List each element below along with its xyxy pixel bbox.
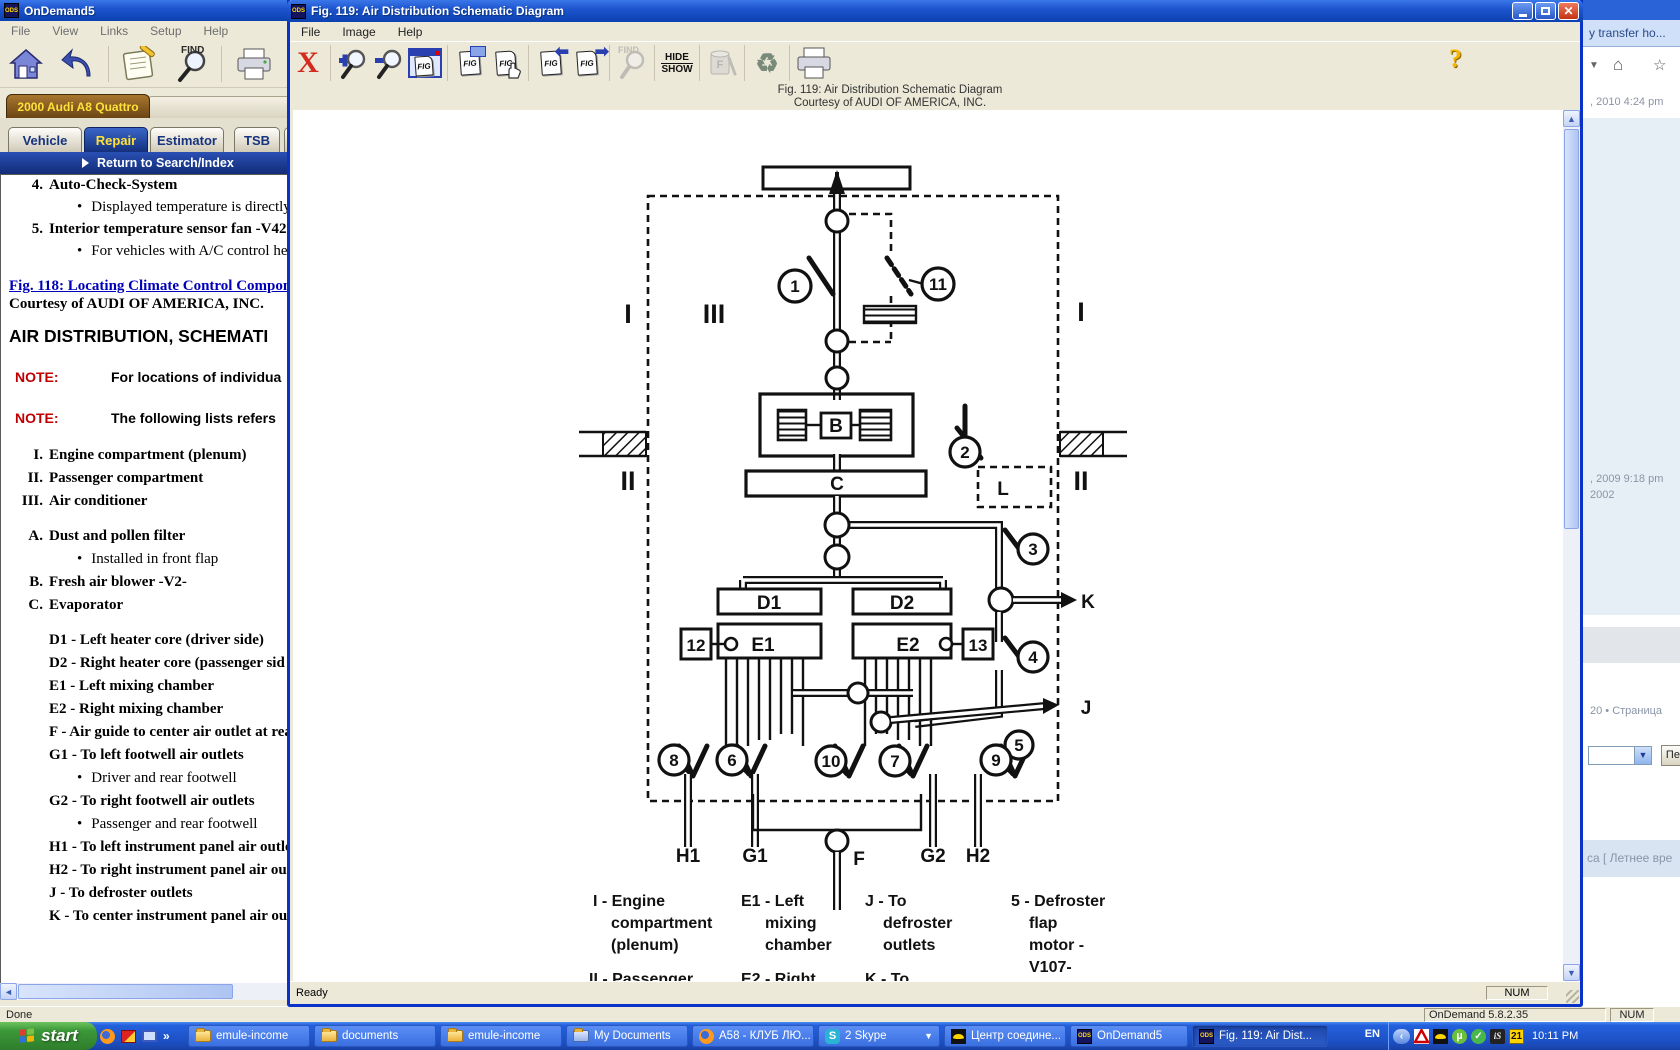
browser-header-text: y transfer ho... [1589,26,1666,40]
folder-icon [195,1030,211,1042]
fig-titlebar[interactable]: ODS Fig. 119: Air Distribution Schematic… [287,0,1583,22]
pager-text: 20 • Страница [1590,705,1662,717]
diagram-number-2: 2 [960,443,969,462]
doc-horizontal-scrollbar[interactable]: ◄ [0,983,287,1000]
diagram-label-air-conditioner: III [703,299,726,329]
list-number: 4. [7,177,43,194]
arrow-right-icon [82,158,89,168]
roman-item: Passenger compartment [49,470,203,487]
taskbar-button-ondemand5[interactable]: ODS OnDemand5 [1070,1025,1188,1047]
diagram-number-1: 1 [790,277,799,296]
toolbar-separator [699,45,700,81]
note-text: For locations of individua [111,369,281,385]
code-item: J - To defroster outlets [49,885,193,902]
status-done: Done [6,1009,32,1021]
taskbar-button-my-documents[interactable]: My Documents [566,1025,688,1047]
toolbar-separator [528,45,529,81]
menu-file[interactable]: File [0,24,41,38]
repair-document-panel: 4. Auto-Check-System Displayed temperatu… [0,174,287,983]
quick-launch-bar: » [100,1024,170,1048]
diagram-number-5: 5 [1014,736,1023,755]
legend-line: flap [1029,915,1058,932]
minimize-button[interactable] [1512,2,1533,20]
menu-setup[interactable]: Setup [139,24,192,38]
toolbar-separator [447,45,448,81]
status-num: NUM [1486,986,1548,1000]
code-item: E1 - Left mixing chamber [49,678,214,695]
letter-item: Evaporator [49,597,123,614]
taskbar-button-documents[interactable]: documents [314,1025,436,1047]
diagram-number-13: 13 [969,636,988,655]
footer-text: са [ Летнее вре [1587,851,1672,865]
toolbar-separator [609,45,610,81]
diagram-label-engine-compartment-left: I [624,299,632,329]
list-bullet: For vehicles with A/C control head [77,243,287,260]
footer-bar-fragment: са [ Летнее вре [1583,840,1680,877]
taskbar-button-label: My Documents [594,1030,671,1042]
fig-window-title: Fig. 119: Air Distribution Schematic Dia… [311,4,564,18]
back-button[interactable] [52,43,104,85]
arrow-left-icon: ⬅ [555,42,569,62]
legend-line: E2 - Right [741,971,816,981]
diagram-number-9: 9 [991,751,1000,770]
scroll-down-icon[interactable]: ▼ [1563,964,1580,981]
list-bullet: Installed in front flap [77,551,218,568]
app-icon: ODS [4,3,19,18]
browser-header-bar: y transfer ho... [1583,20,1680,47]
vehicle-tab[interactable]: 2000 Audi A8 Quattro [6,94,150,118]
tray-badge-21[interactable]: 21 [1509,1029,1524,1044]
language-indicator[interactable]: EN [1365,1028,1380,1040]
status-ready: Ready [296,987,328,999]
back-arrow-icon [60,48,96,80]
tab-repair[interactable]: Repair [84,127,148,152]
maximize-icon [1541,7,1550,15]
tray-red-icon[interactable] [1414,1029,1429,1044]
code-item: F - Air guide to center air outlet at re… [49,724,287,741]
list-bullet: Displayed temperature is directly ca [77,199,287,216]
main-window-title: OnDemand5 [24,4,95,18]
post-timestamp: , 2009 9:18 pm [1590,473,1663,485]
close-figure-button[interactable]: X [290,44,326,82]
media-player-icon[interactable] [121,1030,136,1043]
hide-show-button[interactable]: HIDE SHOW [659,44,695,82]
list-bullet: Passenger and rear footwell [77,816,257,833]
flap-L-box [978,467,1051,507]
home-icon [8,47,44,81]
my-documents-icon [573,1030,589,1042]
roman-item: Engine compartment (plenum) [49,447,247,464]
tab-estimator[interactable]: Estimator [150,127,224,152]
fig-119-window: ODS Fig. 119: Air Distribution Schematic… [287,0,1583,1007]
taskbar-button-label: Fig. 119: Air Dist... [1219,1030,1312,1042]
skype-icon: S [825,1029,840,1044]
diagram-number-3: 3 [1028,540,1037,559]
close-icon: ✕ [1563,4,1573,18]
page-select[interactable]: ▼ [1588,746,1652,765]
windows-flag-icon [19,1028,35,1045]
tray-clock: 10:11 PM [1532,1030,1578,1042]
firefox-icon[interactable] [100,1029,115,1044]
taskbar-button-label: A58 - КЛУБ ЛЮ... [719,1030,811,1042]
list-item: Interior temperature sensor fan -V42- [49,221,287,238]
taskbar-button-label: Центр соедине... [971,1030,1061,1042]
figure-image-area[interactable]: I III I II II B C L [293,110,1563,981]
toolbar-separator [789,45,790,81]
fig-window-view-button[interactable]: FIG [407,44,443,82]
notes-icon [121,46,159,82]
roman-number: I. [7,447,43,464]
ods-icon: ODS [1199,1029,1214,1044]
diagram-number-8: 8 [669,751,678,770]
printer-icon [234,46,274,82]
letter-number: B. [7,574,43,591]
go-button[interactable]: Пер [1661,745,1680,766]
diagram-label-k: K [1081,592,1095,613]
previous-figure-button[interactable]: FIG ⬅ [533,44,569,82]
toolbar-separator [744,45,745,81]
roman-number: II. [7,470,43,487]
tray-utorrent-icon[interactable]: µ [1452,1029,1467,1044]
tab-vehicle[interactable]: Vehicle [8,127,82,152]
find-button-disabled: FIND [614,44,650,82]
main-statusbar: Done OnDemand 5.8.2.35 NUM [0,1006,1680,1022]
figure-vertical-scrollbar[interactable]: ▲ ▼ [1563,110,1580,981]
legend-line: J - To [865,893,907,910]
figure-legend: I - Engine compartment (plenum) II - Pas… [589,893,1105,981]
figure-caption-line1: Fig. 119: Air Distribution Schematic Dia… [290,84,1490,97]
diagram-label-blower: B [829,416,843,437]
fig-toolbar: X FIG FIG [290,41,1580,84]
start-label: start [41,1026,78,1046]
quick-launch-overflow-chevron[interactable]: » [163,1029,170,1043]
letter-item: Fresh air blower -V2- [49,574,187,591]
code-item: H2 - To right instrument panel air outl [49,862,287,879]
taskbar-button-label: OnDemand5 [1097,1030,1162,1042]
diagram-label-d1: D1 [757,593,782,614]
toolbar-separator [108,46,109,82]
browser-titlebar-fragment [1583,0,1680,20]
fig-pan-button[interactable]: FIG [488,44,524,82]
close-x-icon: X [297,46,319,80]
schematic-drawing: I III I II II B C L [293,110,1563,981]
refresh-button[interactable]: ♻ [749,44,785,82]
browser-window-fragment: y transfer ho... ▼ ⌂ ☆ , 2010 4:24 pm , … [1583,0,1680,1008]
diagram-label-engine-compartment-right: I [1077,297,1085,327]
minimize-icon [1519,14,1527,17]
mini-window-icon [470,46,486,57]
legend-line: motor - [1029,937,1084,954]
hide-label: HIDE [661,52,692,64]
return-link-label: Return to Search/Index [97,156,234,170]
printer-icon [794,45,834,81]
zoom-in-button[interactable] [335,44,371,82]
select-arrow-icon[interactable]: ▼ [1634,747,1651,764]
list-item: Auto-Check-System [49,177,177,194]
tray-bat-icon[interactable] [1433,1029,1448,1044]
menu-help[interactable]: Help [387,25,434,39]
diagram-label-e1: E1 [751,635,775,656]
refresh-icon: ♻ [755,48,778,79]
menu-file[interactable]: File [290,25,331,39]
diagram-label-h1: H1 [676,846,701,867]
bulkhead-left [603,432,646,456]
legend-line: II - Passenger [589,971,693,981]
legend-line: (plenum) [611,937,679,954]
chevron-down-icon[interactable]: ▼ [1589,60,1599,71]
mixing-chamber-ducts [726,658,931,746]
fig-118-link[interactable]: Fig. 118: Locating Climate Control Compo… [9,278,287,295]
letter-number: A. [7,528,43,545]
code-item: E2 - Right mixing chamber [49,701,223,718]
code-item: G2 - To right footwell air outlets [49,793,255,810]
status-num: NUM [1610,1008,1654,1022]
tab-tsb[interactable]: TSB [234,127,280,152]
taskbar-button-emule-income-2[interactable]: emule-income [440,1025,562,1047]
fig-window-icon: FIG [408,48,442,78]
arrow-right-icon: ➡ [595,42,609,62]
diagram-label-passenger-compartment-right: II [1073,466,1088,496]
diagram-label-d2: D2 [890,593,914,614]
toolbar-separator [221,46,222,82]
code-item: H1 - To left instrument panel air outle [49,839,287,856]
diagram-label-g1: G1 [742,846,768,867]
print-figure-button[interactable] [794,44,834,82]
menu-image[interactable]: Image [331,25,386,39]
post-year: 2002 [1590,489,1614,501]
zoom-in-icon [337,46,369,80]
taskbar: start » emule-income documents emule-inc… [0,1022,1680,1050]
note-label: NOTE: [15,410,59,426]
diagram-label-e2: E2 [896,635,919,656]
toolbar-separator [330,45,331,81]
fig-menubar: File Image Help [290,22,1580,41]
tray-collapse-chevron[interactable]: ‹ [1393,1029,1410,1044]
ods-icon: ODS [1077,1029,1092,1044]
legend-line: 5 - Defroster [1011,893,1105,910]
maximize-button[interactable] [1535,2,1556,20]
section-heading: AIR DISTRIBUTION, SCHEMATI [9,326,268,347]
home-icon[interactable]: ⌂ [1613,55,1623,75]
diagram-label-l: L [997,479,1009,500]
scroll-thumb[interactable] [1564,129,1579,529]
scroll-left-icon[interactable]: ◄ [0,983,17,1000]
resize-grip[interactable] [1566,990,1579,1003]
recirculation-resistor [864,306,916,323]
taskbar-button-label: 2 Skype [845,1030,887,1042]
roman-number: III. [7,493,43,510]
zoom-out-button[interactable] [371,44,407,82]
taskbar-button-fig-119[interactable]: ODS Fig. 119: Air Dist... [1192,1025,1328,1047]
status-version: OnDemand 5.8.2.35 [1424,1008,1606,1022]
vehicle-tab-background [146,96,306,118]
diagram-label-j: J [1081,698,1092,719]
legend-line: outlets [883,937,936,954]
firefox-icon [699,1029,714,1044]
tray-is-icon[interactable]: iS [1490,1029,1505,1044]
note-text: The following lists refers [111,410,276,426]
letter-number: C. [7,597,43,614]
toolbar-separator [654,45,655,81]
bat-app-icon [951,1029,966,1044]
legend-line: compartment [611,915,713,932]
list-number: 5. [7,221,43,238]
code-item: K - To center instrument panel air outl [49,908,287,925]
letter-item: Dust and pollen filter [49,528,185,545]
show-desktop-icon[interactable] [142,1030,157,1042]
diagram-label-passenger-compartment-left: II [620,466,635,496]
find-button[interactable]: FIND [167,43,217,85]
diagram-label-g2: G2 [920,846,945,867]
legend-line: chamber [765,937,832,954]
folder-icon [447,1030,463,1042]
help-question-icon[interactable]: ? [1449,44,1462,74]
code-item: D2 - Right heater core (passenger sid [49,655,285,672]
menu-links[interactable]: Links [89,24,139,38]
legend-line: defroster [883,915,952,932]
diagram-number-12: 12 [687,636,706,655]
folder-icon [321,1030,337,1042]
scroll-thumb[interactable] [18,984,233,999]
legend-line: K - To [865,971,909,981]
show-label: SHOW [661,64,692,75]
next-figure-button[interactable]: FIG ➡ [569,44,605,82]
scroll-up-icon[interactable]: ▲ [1563,110,1580,127]
diagram-number-6: 6 [727,751,736,770]
start-button[interactable]: start [0,1022,97,1050]
fig-statusbar: Ready NUM [290,981,1580,1004]
chevron-down-icon[interactable]: ▼ [924,1031,933,1041]
svg-text:F: F [717,59,724,71]
paint-can-icon: F [705,46,739,80]
diagram-label-h2: H2 [966,846,990,867]
system-tray: ‹ µ ✓ iS 21 10:11 PM [1388,1022,1680,1050]
legend-line: V107- [1029,959,1072,976]
list-bullet: Driver and rear footwell [77,770,237,787]
figure-caption: Fig. 119: Air Distribution Schematic Dia… [290,84,1490,110]
diagram-label-evaporator: C [830,474,844,495]
fig-thumbnail-button[interactable]: FIG [452,44,488,82]
diagram-label-f: F [853,849,865,870]
find-label: FIND [618,45,639,55]
print-button[interactable] [226,43,282,85]
post-body-fragment: , 2009 9:18 pm 2002 [1583,118,1680,615]
roman-item: Air conditioner [49,493,147,510]
paint-button-disabled: F [704,44,740,82]
diagram-number-4: 4 [1028,648,1038,667]
diagram-number-10: 10 [822,752,841,771]
post-timestamp: , 2010 4:24 pm [1590,96,1663,108]
bulkhead-right [1060,432,1103,456]
taskbar-button-firefox-forum[interactable]: A58 - КЛУБ ЛЮ... [692,1025,814,1047]
code-item: G1 - To left footwell air outlets [49,747,244,764]
home-button[interactable] [0,43,52,85]
diagram-number-7: 7 [890,752,899,771]
star-icon[interactable]: ☆ [1653,56,1666,74]
diagram-number-11: 11 [929,275,947,294]
menu-help[interactable]: Help [193,24,240,38]
note-label: NOTE: [15,369,59,385]
zoom-out-icon [373,46,405,80]
taskbar-button-center[interactable]: Центр соедине... [944,1025,1066,1047]
post-footer-fragment [1583,627,1680,663]
legend-line: E1 - Left [741,893,805,910]
taskbar-button-skype[interactable]: S 2 Skype ▼ [818,1025,940,1047]
taskbar-button-label: emule-income [216,1030,288,1042]
figure-caption-line2: Courtesy of AUDI OF AMERICA, INC. [290,97,1490,110]
app-icon: ODS [291,4,306,19]
legend-line: I - Engine [593,893,665,910]
tray-check-icon[interactable]: ✓ [1471,1029,1486,1044]
legend-line: mixing [765,915,817,932]
close-button[interactable]: ✕ [1558,2,1579,20]
find-label: FIND [181,45,204,56]
menu-view[interactable]: View [41,24,89,38]
taskbar-button-emule-income-1[interactable]: emule-income [188,1025,310,1047]
taskbar-button-label: documents [342,1030,398,1042]
notes-button[interactable] [113,43,167,85]
hand-icon [506,62,522,79]
taskbar-button-label: emule-income [468,1030,540,1042]
code-item: D1 - Left heater core (driver side) [49,632,264,649]
courtesy-line: Courtesy of AUDI OF AMERICA, INC. [9,296,264,313]
